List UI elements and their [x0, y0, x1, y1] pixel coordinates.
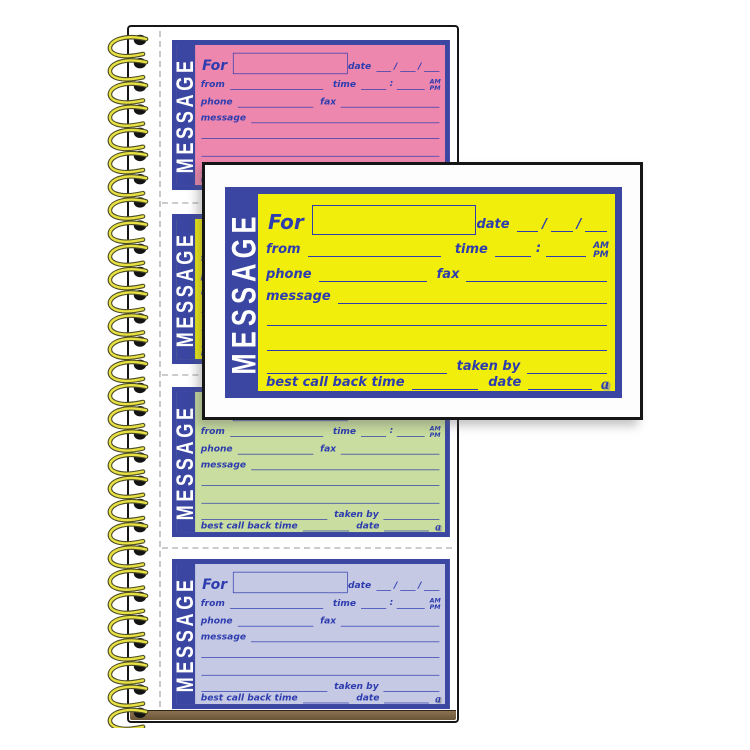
- message-row: message: [200, 109, 441, 123]
- phone-label: phone: [201, 617, 233, 627]
- time-minute-line: [397, 436, 425, 437]
- from-label: from: [266, 243, 301, 257]
- fax-line: [466, 281, 607, 282]
- date-slash: /: [394, 581, 397, 591]
- phone-label: phone: [201, 445, 233, 455]
- message-line: [251, 122, 439, 123]
- blank-line-row: [200, 125, 441, 139]
- message-label: message: [201, 460, 246, 470]
- message-sidebar: MESSAGE: [232, 194, 258, 391]
- time-label: time: [333, 599, 356, 609]
- fax-line: [341, 454, 439, 455]
- write-line: [201, 657, 439, 658]
- phone-fax-row: phone fax: [200, 93, 441, 107]
- time-label: time: [455, 243, 488, 257]
- write-line: [201, 503, 439, 504]
- from-label: from: [201, 599, 225, 609]
- write-line: [201, 675, 439, 676]
- date-month-line: [517, 231, 539, 232]
- callback-time-line: [303, 703, 350, 704]
- for-input-box: [312, 205, 477, 235]
- for-label: For: [268, 212, 304, 233]
- for-input-box: [233, 572, 348, 593]
- date-slash: /: [542, 218, 547, 232]
- blank-line-row: [265, 331, 609, 351]
- date-label: date: [348, 62, 371, 72]
- from-label: from: [201, 427, 225, 437]
- from-line: [230, 608, 323, 609]
- fax-label: fax: [320, 617, 336, 627]
- date-slash: /: [418, 62, 421, 72]
- from-time-row: from time : AM PM: [200, 423, 441, 437]
- fax-label: fax: [320, 445, 336, 455]
- blank-line-row: [200, 661, 441, 675]
- fax-line: [341, 626, 439, 627]
- phone-label: phone: [201, 98, 233, 108]
- time-colon: :: [390, 79, 394, 89]
- phone-fax-row: phone fax: [200, 440, 441, 454]
- message-label: message: [266, 290, 331, 304]
- form-fields: For date / / from time : AM PM: [195, 564, 445, 704]
- fax-label: fax: [320, 98, 336, 108]
- date-label: date: [348, 581, 371, 591]
- pm-label: PM: [430, 85, 441, 91]
- for-label: For: [202, 577, 227, 592]
- message-line: [251, 641, 439, 642]
- write-line: [201, 485, 439, 486]
- time-hour-line: [361, 89, 386, 90]
- blank-line-row: [200, 489, 441, 503]
- callback-time-line: [412, 389, 479, 390]
- am-pm-indicator: AM PM: [430, 426, 441, 438]
- from-time-row: from time : AM PM: [200, 76, 441, 90]
- for-date-row: For date / /: [265, 194, 609, 235]
- date-slash: /: [418, 581, 421, 591]
- phone-line: [238, 626, 314, 627]
- message-row: message: [200, 628, 441, 642]
- best-call-back-label: best call back time: [201, 522, 298, 532]
- callback-date-line: [528, 389, 592, 390]
- fax-line: [341, 107, 439, 108]
- write-line: [201, 156, 439, 157]
- write-line: [267, 350, 607, 351]
- adams-brand-logo: a: [435, 522, 441, 533]
- form-fields: For date / / from time : AM PM: [258, 194, 615, 391]
- am-pm-indicator: AM PM: [593, 242, 609, 259]
- callback-row: best call back time date a: [200, 689, 441, 703]
- blank-line-row: [200, 472, 441, 486]
- blank-line-row: [200, 142, 441, 156]
- blank-line-row: [200, 644, 441, 658]
- time-hour-line: [495, 256, 531, 257]
- message-line: [251, 469, 439, 470]
- date-label: date: [476, 218, 509, 232]
- callback-row: best call back time date a: [200, 517, 441, 531]
- message-sidebar: MESSAGE: [177, 392, 195, 532]
- callback-row: best call back time date a: [265, 370, 609, 390]
- vertical-perforation: [159, 31, 161, 707]
- message-label: message: [201, 113, 246, 123]
- from-time-row: from time : AM PM: [200, 595, 441, 609]
- time-colon: :: [390, 426, 394, 436]
- from-line: [230, 436, 323, 437]
- from-line: [308, 256, 441, 257]
- write-line: [267, 325, 607, 326]
- message-sidebar: MESSAGE: [177, 45, 195, 185]
- message-row: message: [265, 284, 609, 304]
- detail-message-sheet: MESSAGE For date / / from time :: [225, 187, 622, 398]
- message-form: MESSAGE For date / / from time :: [172, 559, 450, 709]
- date-day-line: [551, 231, 573, 232]
- from-time-row: from time : AM PM: [265, 237, 609, 257]
- message-sidebar: MESSAGE: [177, 564, 195, 704]
- message-line: [338, 303, 607, 304]
- product-photo: MESSAGE For date / / from time :: [0, 0, 750, 750]
- callback-date-line: [384, 531, 429, 532]
- date-day-line: [400, 71, 415, 72]
- date-month-line: [376, 590, 391, 591]
- for-label: For: [202, 58, 227, 73]
- time-hour-line: [361, 436, 386, 437]
- detail-card: MESSAGE For date / / from time :: [202, 162, 643, 420]
- pm-label: PM: [593, 251, 609, 260]
- adams-brand-logo: a: [601, 377, 609, 393]
- pm-label: PM: [430, 604, 441, 610]
- date-year-line: [424, 590, 439, 591]
- date-day-line: [400, 590, 415, 591]
- fax-label: fax: [437, 268, 460, 282]
- callback-date-label: date: [356, 694, 379, 704]
- adams-brand-logo: a: [435, 694, 441, 705]
- horizontal-perforation: [162, 547, 452, 549]
- callback-time-line: [303, 531, 350, 532]
- message-form: MESSAGE For date / / from time :: [225, 187, 622, 398]
- message-label: message: [201, 632, 246, 642]
- from-line: [230, 89, 323, 90]
- blank-line-row: [265, 306, 609, 326]
- time-colon: :: [390, 598, 394, 608]
- spiral-binding: [86, 22, 158, 728]
- phone-line: [238, 107, 314, 108]
- for-input-box: [233, 53, 348, 74]
- time-label: time: [333, 80, 356, 90]
- for-date-row: For date / /: [200, 564, 441, 593]
- date-slash: /: [394, 62, 397, 72]
- best-call-back-label: best call back time: [266, 376, 405, 390]
- phone-fax-row: phone fax: [265, 262, 609, 282]
- time-minute-line: [397, 89, 425, 90]
- phone-fax-row: phone fax: [200, 612, 441, 626]
- date-month-line: [376, 71, 391, 72]
- date-slash: /: [577, 218, 582, 232]
- phone-line: [238, 454, 314, 455]
- am-pm-indicator: AM PM: [430, 598, 441, 610]
- am-pm-indicator: AM PM: [430, 79, 441, 91]
- phone-label: phone: [266, 268, 312, 282]
- callback-date-label: date: [356, 522, 379, 532]
- best-call-back-label: best call back time: [201, 694, 298, 704]
- from-label: from: [201, 80, 225, 90]
- chipboard-backing: [130, 710, 456, 720]
- callback-date-line: [384, 703, 429, 704]
- message-sheet-lavender: MESSAGE For date / / from time :: [172, 559, 451, 709]
- callback-date-label: date: [488, 376, 521, 390]
- time-colon: :: [536, 242, 541, 256]
- time-label: time: [333, 427, 356, 437]
- time-minute-line: [397, 608, 425, 609]
- message-sidebar: MESSAGE: [177, 219, 195, 359]
- phone-line: [319, 281, 427, 282]
- for-date-row: For date / /: [200, 45, 441, 74]
- time-hour-line: [361, 608, 386, 609]
- date-year-line: [424, 71, 439, 72]
- write-line: [201, 138, 439, 139]
- date-year-line: [585, 231, 607, 232]
- time-minute-line: [546, 256, 586, 257]
- pm-label: PM: [430, 432, 441, 438]
- message-row: message: [200, 456, 441, 470]
